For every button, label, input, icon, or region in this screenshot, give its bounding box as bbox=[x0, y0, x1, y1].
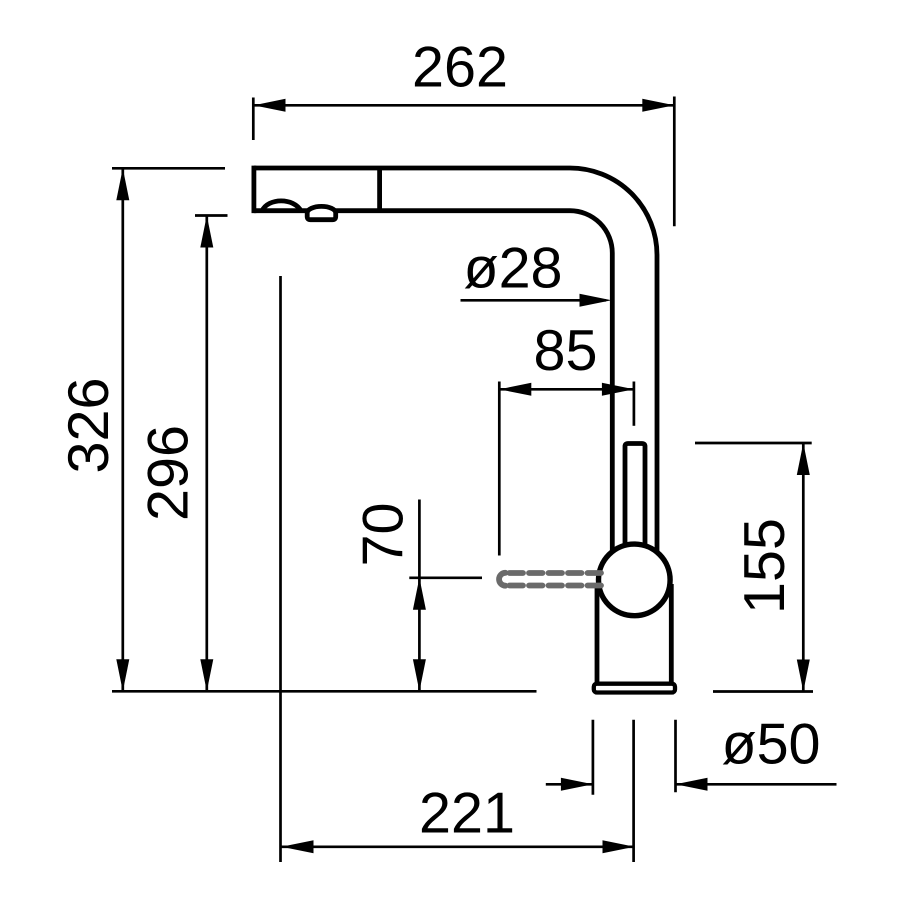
svg-text:221: 221 bbox=[419, 782, 515, 846]
svg-text:70: 70 bbox=[352, 503, 416, 567]
svg-text:85: 85 bbox=[534, 319, 598, 383]
svg-text:326: 326 bbox=[57, 378, 121, 474]
svg-text:262: 262 bbox=[412, 36, 508, 100]
svg-text:155: 155 bbox=[733, 518, 797, 614]
svg-text:ø28: ø28 bbox=[463, 237, 562, 301]
svg-text:296: 296 bbox=[137, 425, 201, 521]
svg-text:ø50: ø50 bbox=[721, 713, 820, 777]
